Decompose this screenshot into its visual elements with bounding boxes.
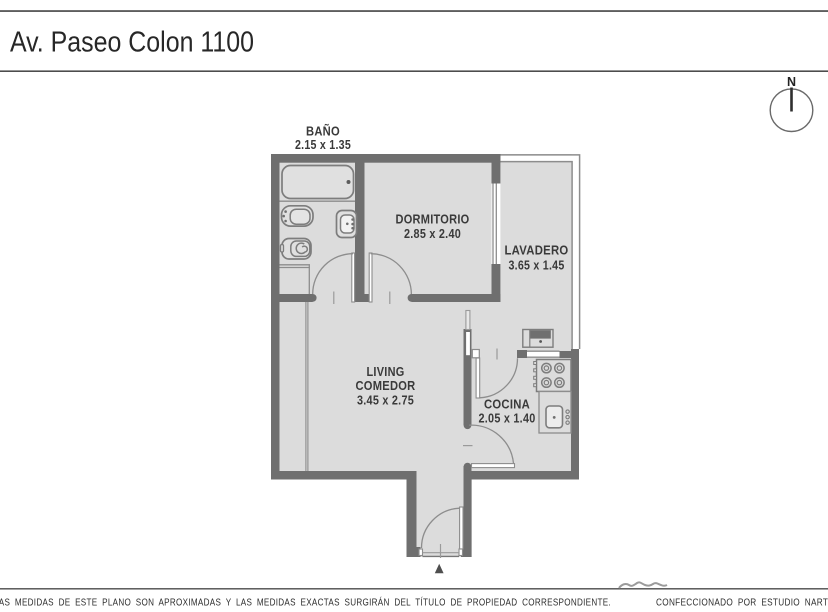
svg-text:2.05 x 1.40: 2.05 x 1.40 xyxy=(479,411,536,426)
svg-text:LAS MEDIDAS DE ESTE PLANO SON: LAS MEDIDAS DE ESTE PLANO SON APROXIMADA… xyxy=(0,598,611,609)
svg-text:Av. Paseo Colon 1100: Av. Paseo Colon 1100 xyxy=(10,27,254,59)
svg-text:3.65 x 1.45: 3.65 x 1.45 xyxy=(509,257,565,272)
svg-text:LIVING: LIVING xyxy=(367,364,405,379)
svg-text:2.15 x 1.35: 2.15 x 1.35 xyxy=(295,137,351,152)
svg-text:2.85 x 2.40: 2.85 x 2.40 xyxy=(404,226,461,241)
svg-text:N: N xyxy=(787,75,796,89)
svg-text:COMEDOR: COMEDOR xyxy=(356,378,416,393)
svg-text:3.45 x 2.75: 3.45 x 2.75 xyxy=(357,393,414,408)
svg-text:LAVADERO: LAVADERO xyxy=(505,242,569,257)
svg-text:DORMITORIO: DORMITORIO xyxy=(396,212,470,227)
svg-text:CONFECCIONADO POR ESTUDIO NART: CONFECCIONADO POR ESTUDIO NARTE xyxy=(656,598,828,609)
svg-text:COCINA: COCINA xyxy=(484,397,530,412)
